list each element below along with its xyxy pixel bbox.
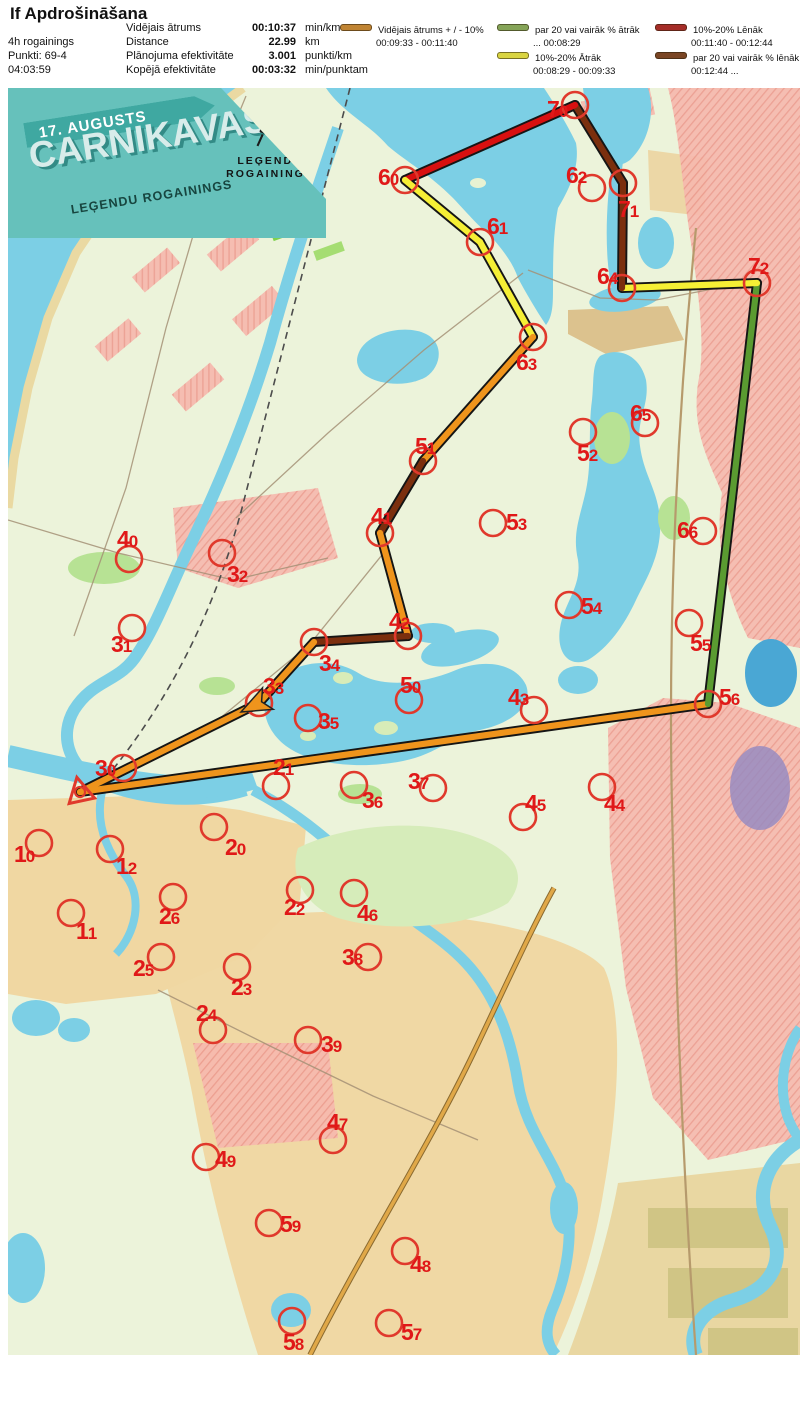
legend-item: 10%-20% Ātrāk00:08:29 - 00:09:33 xyxy=(497,52,615,77)
legend-label: par 20 vai vairāk % ātrāk xyxy=(535,25,640,36)
banner-subtitle: LEĢENDU ROGAININGS xyxy=(70,177,233,216)
event-class: 4h rogainings xyxy=(8,36,74,48)
results-header: If Apdrošināšana 4h rogainings Punkti: 6… xyxy=(0,0,808,88)
stat-label: Vidējais ātrums xyxy=(126,22,244,34)
stat-label: Kopējā efektivitāte xyxy=(126,64,244,76)
legend-swatch-icon xyxy=(655,52,687,59)
stat-unit: min/punktam xyxy=(305,64,368,76)
stat-label: Distance xyxy=(126,36,244,48)
route-map: 1011122021222324252630313233343536373839… xyxy=(8,88,800,1355)
legend-label: Vidējais ātrums + / - 10% xyxy=(378,25,484,36)
legend-range: 00:08:29 - 00:09:33 xyxy=(533,66,615,77)
stat-label: Plānojuma efektivitāte xyxy=(126,50,244,62)
stat-row: Distance22.99km xyxy=(126,36,320,49)
legend-swatch-icon xyxy=(655,24,687,31)
legend-range: 00:12:44 ... xyxy=(691,66,799,77)
legend-item: 10%-20% Lēnāk00:11:40 - 00:12:44 xyxy=(655,24,773,49)
stat-unit: punkti/km xyxy=(305,50,352,62)
stat-row: Kopējā efektivitāte00:03:32min/punktam xyxy=(126,64,368,77)
stat-value: 00:10:37 xyxy=(244,22,296,34)
stat-unit: min/km xyxy=(305,22,340,34)
legend-swatch-icon xyxy=(497,24,529,31)
legend-swatch-icon xyxy=(340,24,372,31)
legend-label: 10%-20% Lēnāk xyxy=(693,25,763,36)
stat-value: 00:03:32 xyxy=(244,64,296,76)
stat-row: Plānojuma efektivitāte3.001punkti/km xyxy=(126,50,352,63)
stat-unit: km xyxy=(305,36,320,48)
total-time: 04:03:59 xyxy=(8,64,51,76)
legend-item: par 20 vai vairāk % ātrāk... 00:08:29 xyxy=(497,24,640,49)
legend-range: 00:11:40 - 00:12:44 xyxy=(691,38,773,49)
legend-swatch-icon xyxy=(497,52,529,59)
legend-item: par 20 vai vairāk % lēnāk00:12:44 ... xyxy=(655,52,799,77)
points-result: Punkti: 69-4 xyxy=(8,50,67,62)
legend-label: par 20 vai vairāk % lēnāk xyxy=(693,53,799,64)
stat-row: Vidējais ātrums00:10:37min/km xyxy=(126,22,340,35)
legend-item: Vidējais ātrums + / - 10%00:09:33 - 00:1… xyxy=(340,24,484,49)
legend-label: 10%-20% Ātrāk xyxy=(535,53,601,64)
legend-range: ... 00:08:29 xyxy=(533,38,640,49)
stat-value: 22.99 xyxy=(244,36,296,48)
legend-range: 00:09:33 - 00:11:40 xyxy=(376,38,484,49)
stat-value: 3.001 xyxy=(244,50,296,62)
team-title: If Apdrošināšana xyxy=(10,4,147,24)
